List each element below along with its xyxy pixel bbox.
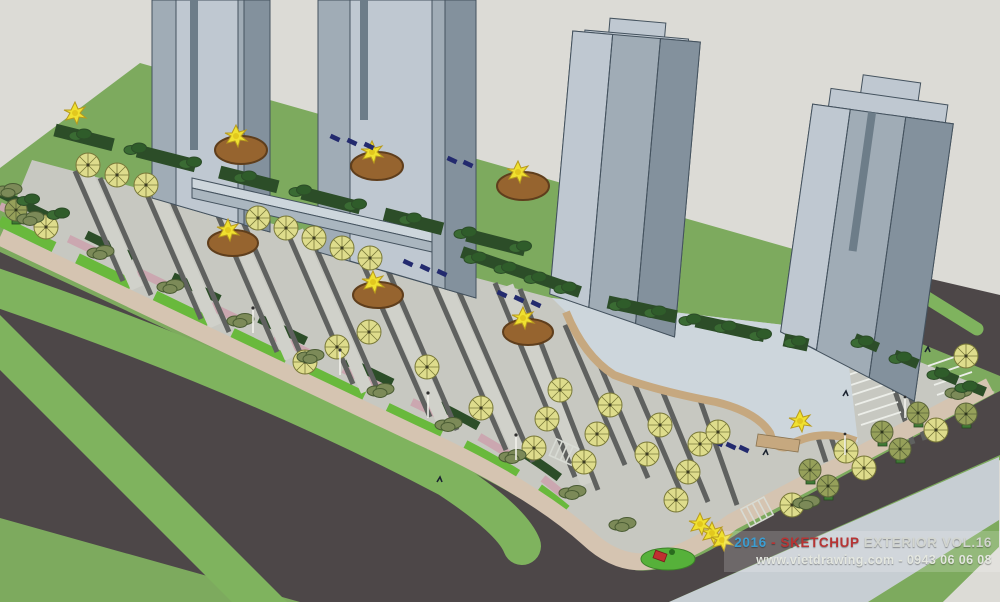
parasol-icon	[924, 418, 948, 442]
parasol-icon	[246, 206, 270, 230]
watermark-separator: -	[767, 535, 781, 550]
parasol-icon	[676, 460, 700, 484]
watermark: 2016 - SKETCHUP EXTERIOR VOL.16 www.viet…	[724, 531, 1000, 572]
parasol-icon	[572, 450, 596, 474]
watermark-brand: SKETCHUP	[781, 535, 860, 550]
parasol-icon	[834, 439, 858, 463]
watermark-line2: www.vietdrawing.com - 0943 06 06 08	[734, 552, 992, 568]
parasol-icon	[274, 216, 298, 240]
parasol-icon	[302, 226, 326, 250]
parasol-icon	[357, 320, 381, 344]
parasol-icon	[585, 422, 609, 446]
parasol-icon	[548, 378, 572, 402]
parasol-icon	[852, 456, 876, 480]
parasol-icon	[664, 488, 688, 512]
parasol-icon	[330, 236, 354, 260]
watermark-title: EXTERIOR VOL.16	[859, 535, 992, 550]
parasol-icon	[415, 355, 439, 379]
render-viewport: 2016 - SKETCHUP EXTERIOR VOL.16 www.viet…	[0, 0, 1000, 602]
parasol-icon	[325, 335, 349, 359]
parasol-icon	[535, 407, 559, 431]
parasol-icon	[358, 246, 382, 270]
parasol-icon	[648, 413, 672, 437]
parasol-icon	[76, 153, 100, 177]
watermark-line1: 2016 - SKETCHUP EXTERIOR VOL.16	[734, 534, 992, 552]
watermark-year: 2016	[734, 535, 766, 550]
scene-svg	[0, 0, 1000, 602]
parasol-icon	[134, 173, 158, 197]
parasol-icon	[598, 393, 622, 417]
parasol-icon	[469, 396, 493, 420]
parasol-icon	[954, 344, 978, 368]
parasol-icon	[105, 163, 129, 187]
parasol-icon	[706, 420, 730, 444]
parasol-icon	[635, 442, 659, 466]
